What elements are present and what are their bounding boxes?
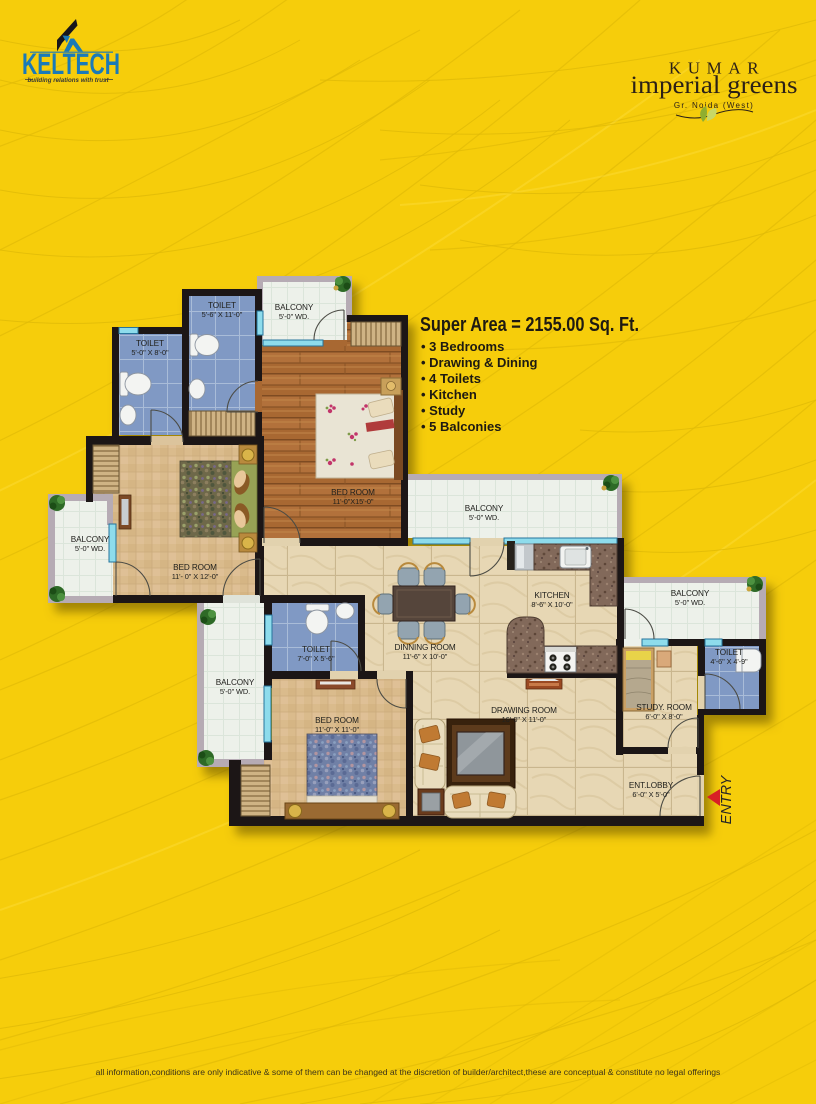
svg-text:• 3 Bedrooms: • 3 Bedrooms xyxy=(421,339,504,354)
svg-text:KITCHEN: KITCHEN xyxy=(534,591,569,600)
svg-text:building relations with trust: building relations with trust xyxy=(27,77,109,84)
svg-text:• Kitchen: • Kitchen xyxy=(421,387,477,402)
svg-text:• 5 Balconies: • 5 Balconies xyxy=(421,419,501,434)
svg-text:11'-0" X 11'-0": 11'-0" X 11'-0" xyxy=(315,725,360,734)
svg-text:16'-0" X 11'-0": 16'-0" X 11'-0" xyxy=(502,715,547,724)
svg-text:8'-6" X 10'-0": 8'-6" X 10'-0" xyxy=(531,600,573,609)
svg-text:STUDY. ROOM: STUDY. ROOM xyxy=(636,703,692,712)
svg-text:TOILET: TOILET xyxy=(715,648,743,657)
svg-text:BED ROOM: BED ROOM xyxy=(331,488,375,497)
svg-text:11'-6" X 10'-0": 11'-6" X 10'-0" xyxy=(403,652,448,661)
svg-text:DINNING ROOM: DINNING ROOM xyxy=(394,643,455,652)
svg-text:5'-0" WD.: 5'-0" WD. xyxy=(279,312,309,321)
svg-text:TOILET: TOILET xyxy=(136,339,164,348)
svg-text:5'-0" WD.: 5'-0" WD. xyxy=(675,598,705,607)
svg-text:5'-0" WD.: 5'-0" WD. xyxy=(220,687,250,696)
svg-text:TOILET: TOILET xyxy=(302,645,330,654)
svg-text:5'-0" WD.: 5'-0" WD. xyxy=(469,513,499,522)
svg-text:ENTRY: ENTRY xyxy=(719,774,735,824)
svg-text:6'-0" X 8'-0": 6'-0" X 8'-0" xyxy=(645,712,683,721)
svg-text:BED ROOM: BED ROOM xyxy=(315,716,359,725)
svg-text:• Drawing & Dining: • Drawing & Dining xyxy=(421,355,538,370)
svg-text:7'-0" X 5'-6": 7'-0" X 5'-6" xyxy=(297,654,335,663)
svg-text:DRAWING ROOM: DRAWING ROOM xyxy=(491,706,557,715)
svg-text:TOILET: TOILET xyxy=(208,301,236,310)
svg-text:Super Area = 2155.00 Sq. Ft.: Super Area = 2155.00 Sq. Ft. xyxy=(420,314,639,336)
svg-text:BED ROOM: BED ROOM xyxy=(173,563,217,572)
svg-text:• Study: • Study xyxy=(421,403,466,418)
svg-text:BALCONY: BALCONY xyxy=(71,535,110,544)
svg-text:5'-0" WD.: 5'-0" WD. xyxy=(75,544,105,553)
svg-text:4'-6" X 4'-9": 4'-6" X 4'-9" xyxy=(710,657,748,666)
svg-text:11'-0"X15'-0": 11'-0"X15'-0" xyxy=(333,497,374,506)
svg-text:5'-6" X 11'-0": 5'-6" X 11'-0" xyxy=(202,310,243,319)
svg-text:BALCONY: BALCONY xyxy=(216,678,255,687)
svg-text:BALCONY: BALCONY xyxy=(275,303,314,312)
svg-text:• 4 Toilets: • 4 Toilets xyxy=(421,371,481,386)
svg-text:11'- 0" X 12'-0": 11'- 0" X 12'-0" xyxy=(172,572,219,581)
svg-text:6'-0" X 5'-0": 6'-0" X 5'-0" xyxy=(632,790,670,799)
svg-text:BALCONY: BALCONY xyxy=(465,504,504,513)
svg-text:all information,conditions are: all information,conditions are only indi… xyxy=(96,1067,721,1077)
svg-text:ENT.LOBBY: ENT.LOBBY xyxy=(629,781,674,790)
svg-text:5'-0" X 8'-0": 5'-0" X 8'-0" xyxy=(131,348,169,357)
svg-text:BALCONY: BALCONY xyxy=(671,589,710,598)
svg-text:imperial greens: imperial greens xyxy=(631,72,798,99)
